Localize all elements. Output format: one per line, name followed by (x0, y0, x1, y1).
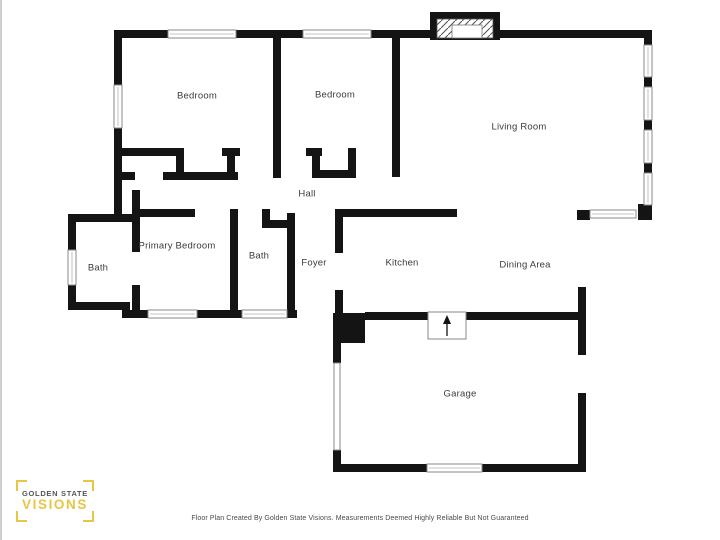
fireplace (430, 12, 500, 40)
room-label-hall: Hall (298, 189, 315, 200)
room-label-dining-area: Dining Area (499, 260, 550, 271)
logo-bracket-icon (16, 480, 27, 491)
room-label-living-room: Living Room (491, 122, 546, 133)
logo-text-line2: VISIONS (22, 498, 88, 512)
room-label-kitchen: Kitchen (385, 258, 418, 269)
steps (428, 312, 466, 339)
room-label-bath-left: Bath (88, 263, 108, 274)
room-label-garage: Garage (444, 389, 477, 400)
room-label-primary-bedroom: Primary Bedroom (139, 241, 216, 252)
room-label-bath-middle: Bath (249, 251, 269, 262)
disclaimer-text: Floor Plan Created By Golden State Visio… (0, 515, 720, 522)
floor-plan-page: Bedroom Bedroom Living Room Hall Primary… (0, 0, 720, 540)
logo-bracket-icon (83, 480, 94, 491)
room-label-foyer: Foyer (301, 258, 326, 269)
room-label-bedroom-1: Bedroom (177, 91, 217, 102)
room-label-bedroom-2: Bedroom (315, 90, 355, 101)
